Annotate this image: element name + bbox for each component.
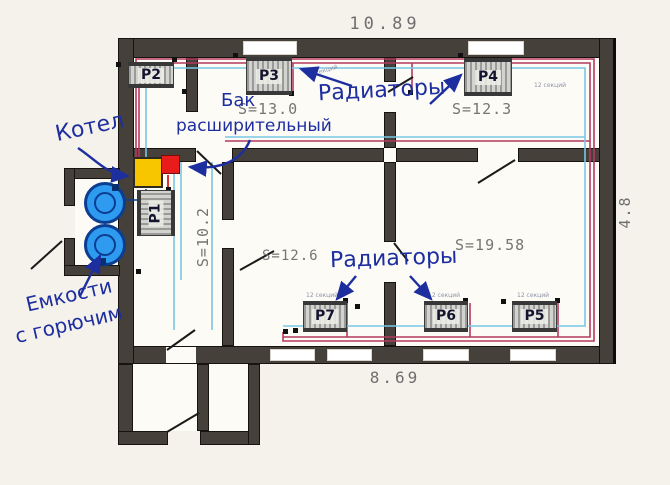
valve-icon — [458, 53, 463, 58]
valve-icon — [293, 328, 298, 333]
fuel-tank-1-nub — [112, 184, 119, 191]
dimension-right: 4.8 — [616, 187, 634, 237]
center-wall-seg4 — [384, 282, 396, 346]
radiator-p5: P5 — [512, 301, 557, 332]
valve-icon — [501, 299, 506, 304]
room-area-s102: S=10.2 — [194, 177, 214, 297]
window-bottom-3 — [423, 349, 469, 361]
annex-wall-bottom — [64, 265, 120, 276]
radiator-p6-label: P6 — [433, 309, 459, 324]
fuel-tank-2-nub — [99, 258, 106, 265]
vestibule-wall-bottom-left — [118, 431, 168, 445]
radiator-p6: P6 — [424, 301, 468, 332]
vestibule-floor — [133, 364, 248, 431]
mid-wall-seg4 — [518, 148, 600, 162]
window-top-1 — [243, 41, 297, 55]
valve-icon — [116, 62, 121, 67]
radiator-p1-label: P1 — [148, 200, 163, 226]
valve-icon — [355, 304, 360, 309]
radiator-p4-label: P4 — [475, 70, 501, 85]
radiator-p1: P1 — [137, 190, 175, 236]
dimension-bottom: 8.69 — [355, 368, 435, 387]
sections-label-p7: 12 секций — [306, 292, 338, 299]
room-area-s123: S=12.3 — [452, 100, 512, 118]
sections-label-p6: 12 секций — [428, 292, 460, 299]
boiler — [133, 157, 163, 188]
radiator-p3-label: P3 — [256, 69, 282, 84]
vestibule-wall-right — [248, 364, 260, 445]
window-bottom-4 — [510, 349, 556, 361]
wall-right — [599, 38, 616, 364]
center-wall-seg3 — [384, 162, 396, 242]
door-opening-vestibule — [166, 347, 196, 363]
center-wall-seg2 — [384, 112, 396, 148]
expansion-tank — [161, 155, 180, 174]
radiator-p2: P2 — [128, 62, 174, 88]
radiator-p2-label: P2 — [138, 68, 164, 83]
radiators-annotation-bottom: Радиаторы — [330, 244, 458, 273]
valve-icon — [136, 269, 141, 274]
radiator-p7: P7 — [303, 301, 347, 332]
expansion-tank-annotation-line1: Бак — [221, 90, 255, 111]
vestibule-wall-inner — [197, 364, 209, 431]
dimension-top: 10.89 — [340, 14, 430, 34]
valve-icon — [233, 53, 238, 58]
sections-label-p4: 12 секций — [534, 82, 566, 89]
stub-wall — [186, 58, 198, 112]
mid-wall-seg2 — [232, 148, 384, 162]
sections-label-p5: 12 секций — [517, 292, 549, 299]
room-area-s126: S=12.6 — [262, 248, 319, 264]
boiler-annotation: Котел — [53, 108, 126, 147]
fuel-tank-1 — [84, 182, 126, 224]
wall-top — [118, 38, 616, 58]
annex-wall-left-upper — [64, 168, 75, 206]
boiler-room-wall-upper — [222, 162, 234, 220]
radiator-p5-label: P5 — [521, 309, 547, 324]
radiator-p4: P4 — [464, 58, 512, 96]
window-bottom-2 — [327, 349, 372, 361]
boiler-room-wall-lower — [222, 248, 234, 346]
window-top-2 — [468, 41, 524, 55]
valve-icon — [283, 329, 288, 334]
expansion-tank-annotation-line2: расширительный — [176, 116, 332, 136]
mid-wall-seg3 — [396, 148, 478, 162]
room-area-s1958: S=19.58 — [455, 236, 525, 254]
valve-icon — [182, 89, 187, 94]
window-bottom-1 — [270, 349, 315, 361]
radiator-p7-label: P7 — [312, 309, 338, 324]
heating-floor-plan: P2 P3 P4 P1 P7 P6 P5 10.89 8.69 4.8 S=13… — [0, 0, 670, 485]
